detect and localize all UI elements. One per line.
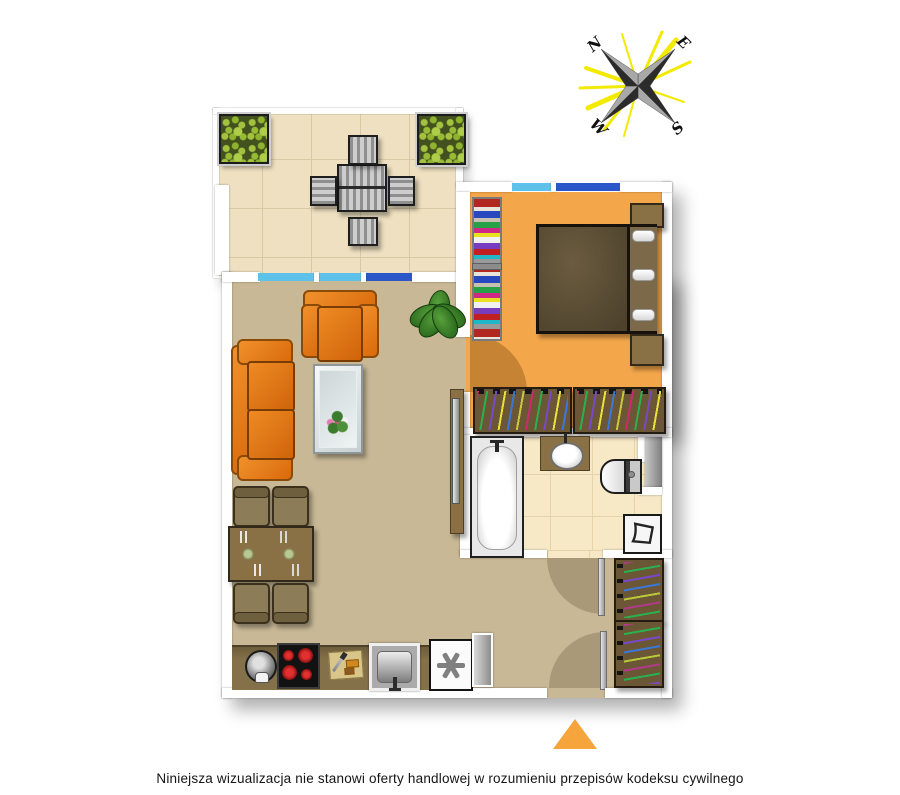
hanger-hooks — [617, 626, 623, 682]
bedroom-wardrobe-left — [473, 387, 572, 434]
compass-north-label: N — [583, 32, 607, 56]
balcony-window-divider — [314, 272, 319, 282]
burner — [301, 669, 312, 680]
compass-west-label: W — [586, 115, 612, 141]
compass-south-label: S — [668, 118, 688, 139]
patio-chair-left — [310, 176, 337, 206]
armchair-seat — [317, 306, 363, 362]
wardrobe-clothes — [624, 624, 660, 684]
balcony-window-divider — [361, 272, 366, 282]
bed-head-section — [627, 227, 657, 331]
balcony-window-wall-right — [412, 272, 462, 282]
bedroom-north-wall-left — [456, 182, 512, 192]
sink-tap — [393, 677, 397, 691]
washbasin-vanity — [540, 436, 590, 471]
dining-chair — [233, 486, 270, 527]
hall-wardrobe-top — [614, 558, 664, 622]
patio-chair-right — [388, 176, 415, 206]
dining-table — [228, 526, 314, 582]
bathtub-tap — [495, 440, 499, 452]
laundry-basket-icon — [625, 516, 660, 552]
burner — [282, 665, 297, 680]
washbasin-tap — [564, 433, 567, 443]
chair-backrest — [273, 487, 308, 498]
balcony-window-glass-light — [258, 273, 365, 281]
sofa-cushion — [247, 361, 295, 412]
hanger-hooks — [617, 564, 623, 616]
west-wall-upper — [215, 185, 229, 275]
bedroom-wardrobe-right — [573, 387, 666, 434]
kettle — [245, 650, 277, 683]
patio-table — [337, 164, 387, 212]
planter-right — [417, 114, 466, 165]
laundry-basket — [623, 514, 662, 554]
patio-chair-top — [348, 135, 378, 165]
dining-chair — [233, 583, 270, 624]
installation-shaft — [645, 437, 662, 488]
balcony-window-glass-dark — [366, 273, 412, 281]
chair-backrest — [273, 612, 308, 623]
pillow — [632, 230, 655, 242]
table-settings — [230, 528, 312, 580]
sofa-cushion — [247, 409, 295, 460]
floor-plan: N E S W Niniejsza wizualizacja nie stano… — [0, 0, 900, 795]
patio-chair-bottom — [348, 217, 378, 246]
entrance-arrow-icon — [553, 719, 597, 749]
cooktop — [277, 643, 320, 689]
balcony-window-wall-left — [222, 272, 260, 282]
burner — [283, 650, 294, 661]
bedroom-bookshelf — [472, 197, 502, 341]
patio-table-split — [339, 186, 385, 189]
nightstand-bottom — [630, 334, 664, 366]
bedroom-window-glass-light — [512, 183, 551, 191]
disclaimer-text: Niniejsza wizualizacja nie stanowi ofert… — [0, 771, 900, 786]
burner — [298, 648, 313, 663]
coffee-table — [313, 364, 363, 454]
bed-duvet — [539, 227, 627, 331]
bathtub — [470, 436, 524, 558]
toilet-flush-button — [628, 471, 635, 478]
pillow — [632, 309, 655, 321]
pillow — [632, 269, 655, 281]
entrance-door-panel — [600, 631, 607, 690]
hall-wardrobe-bottom — [614, 620, 664, 688]
washbasin-bowl — [550, 442, 584, 470]
food-item — [344, 667, 354, 675]
planter-left — [219, 114, 269, 164]
cutting-board — [328, 650, 364, 680]
bedroom-north-wall-right — [620, 182, 672, 192]
compass-east-label: E — [672, 31, 694, 53]
kettle-handle — [255, 672, 269, 683]
armchair — [301, 290, 375, 360]
knife-icon — [332, 658, 343, 672]
dining-chair — [272, 486, 309, 527]
bathroom-door-threshold — [547, 550, 603, 558]
bedroom-window-glass-dark — [556, 183, 620, 191]
wardrobe-clothes — [477, 391, 568, 430]
hallway-radiator — [472, 633, 493, 687]
bedroom-window-divider — [551, 182, 556, 192]
potted-plant — [416, 288, 460, 336]
wardrobe-clothes — [577, 391, 662, 430]
chair-backrest — [234, 612, 269, 623]
wardrobe-clothes — [624, 562, 660, 618]
double-bed — [536, 224, 657, 334]
sofa — [231, 339, 292, 477]
bathroom-door-panel — [598, 558, 605, 616]
compass-rose-icon: N E S W — [578, 28, 698, 146]
bathtub-basin — [477, 446, 517, 550]
west-wall — [222, 272, 232, 698]
toilet — [600, 459, 640, 490]
chair-backrest — [234, 487, 269, 498]
kitchen-sink — [369, 643, 420, 691]
tv-screen — [452, 398, 460, 504]
shelf-divider — [472, 263, 502, 270]
entrance-threshold — [547, 688, 605, 698]
dining-chair — [272, 583, 309, 624]
fridge — [429, 639, 473, 691]
tv-console — [450, 389, 464, 534]
